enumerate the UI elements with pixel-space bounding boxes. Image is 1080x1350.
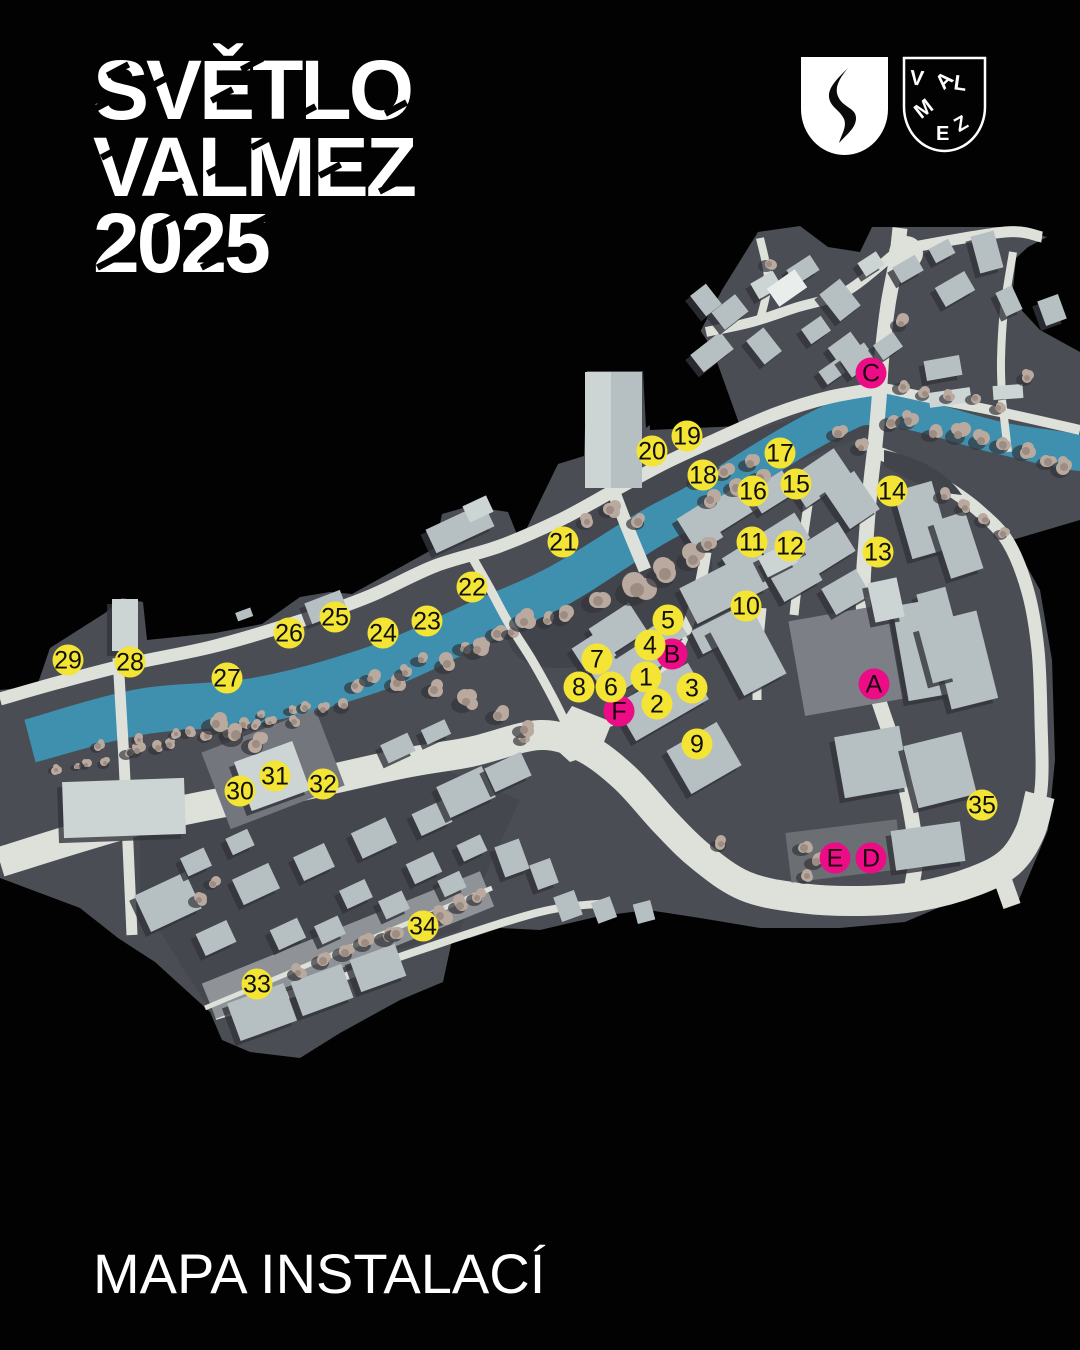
svg-text:3: 3 bbox=[685, 675, 699, 703]
svg-text:16: 16 bbox=[739, 478, 767, 506]
svg-text:34: 34 bbox=[409, 913, 437, 941]
svg-text:17: 17 bbox=[766, 440, 794, 468]
svg-text:27: 27 bbox=[213, 665, 241, 693]
svg-text:2: 2 bbox=[650, 691, 664, 719]
svg-text:32: 32 bbox=[309, 771, 337, 799]
svg-text:B: B bbox=[664, 641, 681, 669]
svg-text:12: 12 bbox=[776, 533, 804, 561]
svg-text:5: 5 bbox=[661, 607, 675, 635]
svg-text:28: 28 bbox=[116, 649, 144, 677]
svg-text:E: E bbox=[936, 123, 949, 145]
svg-text:2025: 2025 bbox=[93, 196, 269, 290]
svg-text:13: 13 bbox=[864, 539, 892, 567]
svg-text:15: 15 bbox=[782, 471, 810, 499]
svg-text:6: 6 bbox=[604, 674, 618, 702]
svg-text:25: 25 bbox=[321, 604, 349, 632]
svg-text:20: 20 bbox=[638, 438, 666, 466]
svg-text:9: 9 bbox=[690, 731, 704, 759]
svg-text:35: 35 bbox=[968, 792, 996, 820]
svg-text:V: V bbox=[909, 66, 925, 90]
svg-text:11: 11 bbox=[739, 529, 765, 557]
svg-text:C: C bbox=[862, 360, 880, 388]
svg-text:D: D bbox=[862, 845, 880, 873]
svg-text:E: E bbox=[827, 845, 844, 873]
svg-text:33: 33 bbox=[243, 971, 271, 999]
svg-text:19: 19 bbox=[673, 423, 701, 451]
svg-text:7: 7 bbox=[590, 646, 604, 674]
svg-text:26: 26 bbox=[275, 620, 303, 648]
svg-text:24: 24 bbox=[369, 620, 397, 648]
svg-text:8: 8 bbox=[572, 674, 586, 702]
svg-text:23: 23 bbox=[413, 608, 441, 636]
svg-text:22: 22 bbox=[458, 574, 486, 602]
svg-text:29: 29 bbox=[54, 647, 82, 675]
svg-text:MAPA INSTALACÍ: MAPA INSTALACÍ bbox=[93, 1242, 546, 1305]
svg-text:1: 1 bbox=[639, 664, 653, 692]
svg-text:A: A bbox=[866, 671, 883, 699]
svg-text:30: 30 bbox=[226, 778, 254, 806]
svg-text:21: 21 bbox=[549, 529, 577, 557]
svg-text:10: 10 bbox=[732, 593, 760, 621]
svg-text:4: 4 bbox=[643, 632, 657, 660]
svg-text:18: 18 bbox=[689, 462, 717, 490]
svg-text:31: 31 bbox=[261, 763, 289, 791]
svg-text:14: 14 bbox=[878, 478, 906, 506]
